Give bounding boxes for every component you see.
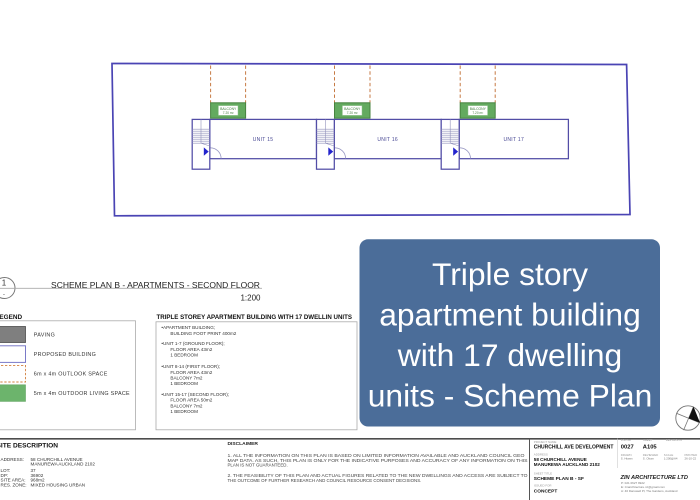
svg-text:ADDRESS: ADDRESS <box>534 453 548 457</box>
svg-text:7.20 m²: 7.20 m² <box>472 111 483 115</box>
svg-text:JOB No: JOB No <box>621 438 632 442</box>
svg-text:7.20 m²: 7.20 m² <box>347 111 358 115</box>
svg-text:units - Scheme Plan: units - Scheme Plan <box>368 378 653 414</box>
svg-text:SCHEME PLAN B - APARTMENTS - S: SCHEME PLAN B - APARTMENTS - SECOND FLOO… <box>51 280 260 290</box>
svg-text:UNIT 17: UNIT 17 <box>503 137 524 143</box>
svg-text:CONCEPT: CONCEPT <box>534 488 558 494</box>
svg-text:PAVING: PAVING <box>34 332 55 338</box>
svg-text:UNIT 16: UNIT 16 <box>377 137 398 143</box>
svg-text:0027: 0027 <box>621 445 634 451</box>
svg-text:1 BEDROOM: 1 BEDROOM <box>170 381 198 386</box>
svg-text:1 BEDROOM: 1 BEDROOM <box>170 353 198 358</box>
svg-text:26-10-22: 26-10-22 <box>685 457 697 461</box>
svg-text:SITE DESCRIPTION: SITE DESCRIPTION <box>0 443 58 450</box>
svg-text:CHURCHILL AVE DEVELOPMENT: CHURCHILL AVE DEVELOPMENT <box>534 444 614 450</box>
svg-text:FLOOR AREA 50m2: FLOOR AREA 50m2 <box>170 398 212 403</box>
svg-text:REVISION #: REVISION # <box>666 438 683 442</box>
svg-text:A105: A105 <box>643 445 658 451</box>
svg-text:ADDRESS:: ADDRESS: <box>1 457 25 462</box>
svg-text:BALCONY 7m2: BALCONY 7m2 <box>170 403 203 408</box>
svg-text:1:200: 1:200 <box>240 293 261 302</box>
svg-text:SHEET: SHEET <box>643 438 653 442</box>
svg-text:FLOOR AREA 43m2: FLOOR AREA 43m2 <box>170 347 212 352</box>
svg-text:UNIT 15: UNIT 15 <box>253 137 274 143</box>
svg-text:A: 40 Danswell Pl, The Gardens: A: 40 Danswell Pl, The Gardens, Auckland <box>621 489 678 493</box>
svg-text:with 17 dwelling: with 17 dwelling <box>397 337 622 373</box>
svg-text:RES. ZONE:: RES. ZONE: <box>1 482 27 487</box>
svg-text:1:200@A4: 1:200@A4 <box>664 457 678 461</box>
svg-text:BALCONY 7m2: BALCONY 7m2 <box>170 376 203 381</box>
svg-text:LEGEND: LEGEND <box>0 314 23 321</box>
svg-text:Triple story: Triple story <box>432 256 588 292</box>
svg-text:PROPOSED BUILDING: PROPOSED BUILDING <box>34 352 96 358</box>
svg-text:BUILDING FOOT PRINT 400m2: BUILDING FOOT PRINT 400m2 <box>170 331 236 336</box>
svg-text:MANUREWA AUCKLAND 2102: MANUREWA AUCKLAND 2102 <box>534 462 600 467</box>
svg-text:PLAN IS NOT GUARANTEED.: PLAN IS NOT GUARANTEED. <box>228 463 288 468</box>
svg-text:1 BEDROOM: 1 BEDROOM <box>170 409 198 414</box>
svg-text:ZIN ARCHITECTURE LTD: ZIN ARCHITECTURE LTD <box>619 475 688 481</box>
svg-text:MANUREWA AUCKLAND 2102: MANUREWA AUCKLAND 2102 <box>31 462 96 467</box>
svg-text:ISSUED FOR: ISSUED FOR <box>534 483 552 487</box>
svg-text:•APARTMENT BUILDING;: •APARTMENT BUILDING; <box>161 325 215 330</box>
svg-text:FLOOR AREA 43m2: FLOOR AREA 43m2 <box>170 370 212 375</box>
svg-text:•UNIT 1-7 (GROUND FLOOR);: •UNIT 1-7 (GROUND FLOOR); <box>161 341 224 346</box>
svg-text:MIXED HOUSING URBAN: MIXED HOUSING URBAN <box>31 482 86 487</box>
svg-text:apartment building: apartment building <box>379 297 641 333</box>
svg-text:TRIPLE STOREY APARTMENT BUILDI: TRIPLE STOREY APARTMENT BUILDING WITH 17… <box>157 314 353 321</box>
svg-text:•UNIT 8-14 (FIRST FLOOR);: •UNIT 8-14 (FIRST FLOOR); <box>161 364 220 369</box>
svg-text:THE OUTCOME OF FURTHER RESEARC: THE OUTCOME OF FURTHER RESEARCH AND COUN… <box>228 478 422 483</box>
svg-text:•UNIT 15-17 (SECOND FLOOR);: •UNIT 15-17 (SECOND FLOOR); <box>161 392 229 397</box>
svg-text:SCHEME PLAN B - SF: SCHEME PLAN B - SF <box>534 476 584 482</box>
svg-text:-: - <box>3 291 5 298</box>
svg-text:DISCLAIMER: DISCLAIMER <box>228 441 259 447</box>
svg-text:S. Okum: S. Okum <box>643 457 655 461</box>
svg-text:S. Htawn: S. Htawn <box>621 457 633 461</box>
svg-text:7.20 m²: 7.20 m² <box>223 111 234 115</box>
svg-text:5m x 4m OUTDOOR LIVING SPACE: 5m x 4m OUTDOOR LIVING SPACE <box>34 391 130 397</box>
svg-text:SHEET TITLE: SHEET TITLE <box>534 471 552 475</box>
svg-text:6m x 4m OUTLOOK SPACE: 6m x 4m OUTLOOK SPACE <box>34 372 108 378</box>
svg-text:1: 1 <box>2 279 7 288</box>
